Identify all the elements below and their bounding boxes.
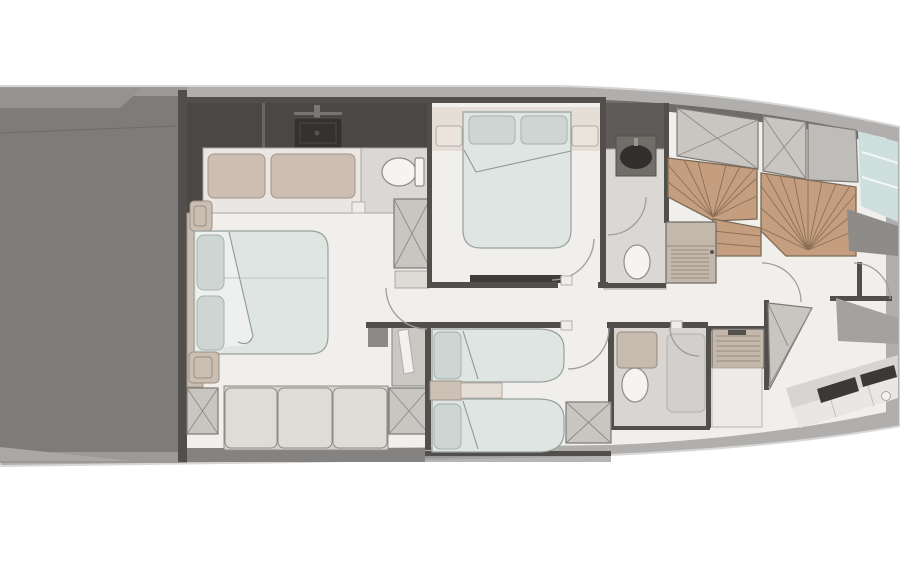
stern-bulkhead-wall [178,90,187,462]
vip-bathroom [604,103,666,289]
toilet-tank [415,158,424,186]
sofa-cushion [278,388,332,448]
sofa-cushion [333,388,387,448]
wardrobe-x-icon [566,402,611,443]
pillow-icon [434,404,461,449]
toilet-icon [622,368,648,402]
cabinet-handle [728,330,746,335]
vip-bottom-wall [428,282,558,288]
guest-bath-right-wall [706,328,711,428]
locker-plain [808,123,858,182]
low-cabinet [395,271,429,288]
louvered-cabinet-icon [712,329,764,368]
nightstand-icon [572,126,598,146]
round-sink-icon [620,145,652,169]
bilge-band [425,456,611,462]
toilet-icon [624,245,650,279]
yacht-floor-plan [0,0,900,564]
garage-floor [0,96,178,452]
settee-cushion [271,154,355,198]
louvered-cabinet-icon [666,222,716,283]
door-jamb [561,321,572,330]
wardrobe-x-icon [389,388,429,434]
cabinet-handle [710,250,714,254]
pillow-icon [469,116,515,144]
tv-bench-icon [470,275,562,283]
white-cabinet [712,368,762,427]
locker-x-hatch [763,116,806,179]
nightstand-top [461,383,502,398]
faucet-icon [314,105,320,118]
floor-plan-canvas [0,0,900,564]
stern-garage [0,87,187,463]
settee-cushion [208,154,265,198]
pillow-icon [434,332,461,379]
door-jamb [352,202,365,213]
pillow-icon [197,296,224,350]
corridor-bottom-wall [607,322,708,328]
nightstand-icon [430,381,461,400]
mirror-divider [262,100,265,148]
sofa-cushion [225,388,277,448]
sink-counter-icon [617,332,657,368]
shower-icon [667,334,705,412]
toilet-icon [382,158,416,186]
wardrobe-x-icon [394,199,430,268]
top-wall [187,97,606,103]
master-vip-wall [427,100,432,288]
drain-dot [315,131,320,136]
pillow-icon [521,116,567,144]
vip-right-wall [600,100,606,285]
wardrobe-x-icon [187,388,218,434]
nightstand-icon [436,126,462,146]
winder-stairs-wood [761,173,856,256]
round-sink-icon [882,392,891,401]
bow-wall [857,262,862,298]
corridor-bottom-wall [366,322,565,328]
guest-bathroom [614,327,706,426]
bath-bottom-wall [604,283,666,288]
garage-hatch-panel [0,88,142,108]
door-jamb [561,276,572,285]
pillow-icon [197,235,224,290]
faucet-icon [634,138,638,146]
